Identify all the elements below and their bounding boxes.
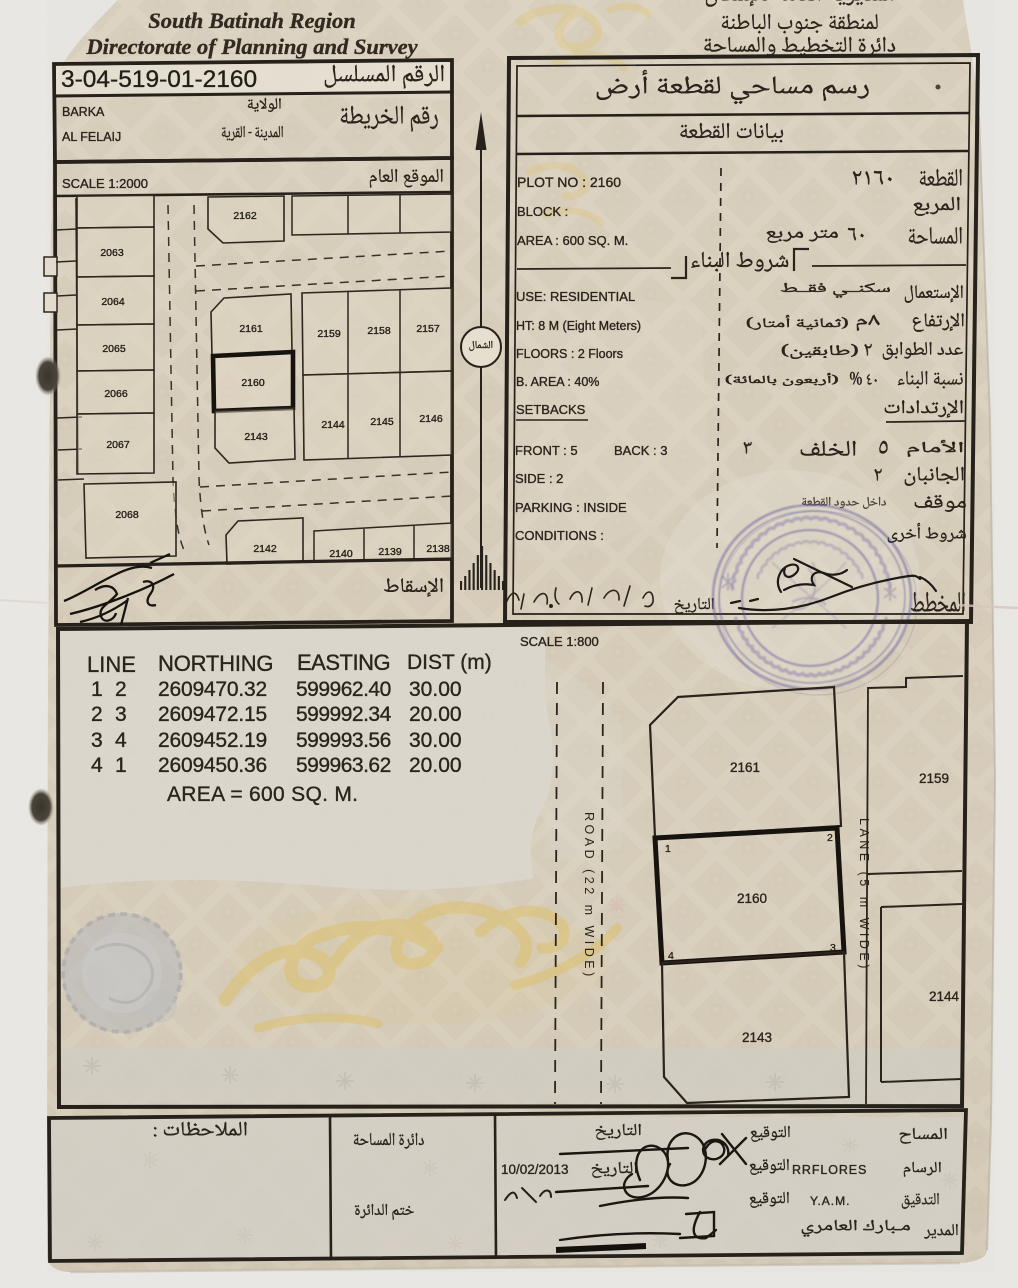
svg-text:2: 2 bbox=[91, 703, 103, 726]
svg-text:2143: 2143 bbox=[244, 431, 268, 443]
svg-text:2068: 2068 bbox=[115, 509, 139, 521]
svg-text:FLOORS : 2 Floors: FLOORS : 2 Floors bbox=[516, 347, 623, 361]
svg-text:SCALE 1:800: SCALE 1:800 bbox=[520, 634, 599, 649]
svg-text:ROAD (22 m WIDE): ROAD (22 m WIDE) bbox=[582, 812, 596, 980]
svg-text:2609470.32: 2609470.32 bbox=[158, 678, 267, 701]
svg-text:2144: 2144 bbox=[929, 989, 960, 1004]
svg-text:2159: 2159 bbox=[317, 328, 341, 340]
svg-text:LINE: LINE bbox=[87, 652, 136, 677]
svg-text:1: 1 bbox=[115, 754, 127, 777]
svg-text:2609450.36: 2609450.36 bbox=[158, 754, 267, 777]
svg-text:3: 3 bbox=[91, 729, 103, 752]
svg-text:2: 2 bbox=[827, 832, 833, 844]
svg-text:PARKING : INSIDE: PARKING : INSIDE bbox=[515, 500, 627, 515]
svg-text:2159: 2159 bbox=[919, 771, 949, 786]
svg-text:1: 1 bbox=[91, 678, 103, 701]
svg-text:2: 2 bbox=[115, 678, 127, 701]
svg-text:2162: 2162 bbox=[233, 210, 257, 222]
svg-text:30.00: 30.00 bbox=[409, 729, 462, 752]
svg-text:SETBACKS: SETBACKS bbox=[516, 402, 586, 417]
svg-text:2145: 2145 bbox=[370, 416, 394, 428]
svg-text:2065: 2065 bbox=[102, 343, 126, 355]
svg-text:CONDITIONS :: CONDITIONS : bbox=[515, 528, 604, 543]
svg-text:HT: 8 M (Eight Meters): HT: 8 M (Eight Meters) bbox=[516, 319, 641, 333]
svg-text:PLOT NO : 2160: PLOT NO : 2160 bbox=[517, 174, 621, 190]
svg-text:20.00: 20.00 bbox=[409, 703, 462, 726]
svg-text:2063: 2063 bbox=[100, 247, 124, 259]
svg-text:2157: 2157 bbox=[416, 323, 440, 335]
svg-text:599963.62: 599963.62 bbox=[296, 754, 391, 777]
svg-text:BARKA: BARKA bbox=[62, 105, 105, 119]
svg-text:1: 1 bbox=[665, 843, 671, 855]
svg-text:AREA = 600 SQ. M.: AREA = 600 SQ. M. bbox=[167, 783, 358, 806]
svg-text:4: 4 bbox=[115, 729, 127, 752]
svg-text:599962.40: 599962.40 bbox=[296, 678, 391, 701]
svg-text:BLOCK :: BLOCK : bbox=[517, 204, 568, 219]
svg-text:Y.A.M.: Y.A.M. bbox=[810, 1194, 850, 1208]
svg-text:2142: 2142 bbox=[253, 543, 277, 555]
svg-text:BACK : 3: BACK : 3 bbox=[614, 443, 667, 458]
svg-text:2160: 2160 bbox=[241, 377, 265, 389]
svg-text:USE: RESIDENTIAL: USE: RESIDENTIAL bbox=[516, 289, 635, 304]
svg-text:B. AREA : 40%: B. AREA : 40% bbox=[516, 375, 599, 389]
svg-text:3-04-519-01-2160: 3-04-519-01-2160 bbox=[61, 66, 257, 93]
svg-text:2161: 2161 bbox=[730, 760, 760, 775]
svg-text:LANE (5 m WIDE): LANE (5 m WIDE) bbox=[857, 818, 871, 972]
svg-text:DIST (m): DIST (m) bbox=[407, 651, 492, 674]
svg-text:2067: 2067 bbox=[106, 439, 130, 451]
svg-text:AL FELAIJ: AL FELAIJ bbox=[62, 130, 121, 144]
svg-text:2161: 2161 bbox=[239, 323, 263, 335]
svg-text:2138: 2138 bbox=[426, 543, 450, 555]
svg-text:2064: 2064 bbox=[101, 296, 125, 308]
svg-text:SCALE 1:2000: SCALE 1:2000 bbox=[62, 176, 148, 191]
svg-text:2160: 2160 bbox=[737, 891, 767, 906]
svg-text:20.00: 20.00 bbox=[409, 754, 462, 777]
svg-text:2066: 2066 bbox=[104, 388, 128, 400]
svg-text:2158: 2158 bbox=[367, 325, 391, 337]
svg-text:2609452.19: 2609452.19 bbox=[158, 729, 267, 752]
svg-text:RRFLORES: RRFLORES bbox=[792, 1163, 867, 1177]
svg-text:2144: 2144 bbox=[321, 419, 345, 431]
svg-text:EASTING: EASTING bbox=[297, 650, 390, 675]
svg-text:2143: 2143 bbox=[742, 1030, 772, 1045]
svg-text:2139: 2139 bbox=[378, 546, 402, 558]
svg-text:10/02/2013: 10/02/2013 bbox=[501, 1162, 569, 1177]
svg-text:Directorate of Planning and Su: Directorate of Planning and Survey bbox=[85, 34, 418, 59]
svg-text:SIDE : 2: SIDE : 2 bbox=[515, 471, 563, 486]
svg-text:2146: 2146 bbox=[419, 413, 443, 425]
svg-text:3: 3 bbox=[115, 703, 127, 726]
svg-text:599993.56: 599993.56 bbox=[296, 729, 391, 752]
svg-text:2140: 2140 bbox=[329, 548, 353, 560]
svg-text:4: 4 bbox=[91, 754, 103, 777]
svg-text:South Batinah Region: South Batinah Region bbox=[148, 8, 356, 33]
svg-text:AREA : 600 SQ. M.: AREA : 600 SQ. M. bbox=[517, 233, 628, 248]
svg-text:4: 4 bbox=[668, 950, 674, 962]
svg-text:2609472.15: 2609472.15 bbox=[158, 703, 267, 726]
svg-text:599992.34: 599992.34 bbox=[296, 703, 392, 726]
svg-text:NORTHING: NORTHING bbox=[158, 651, 273, 676]
svg-text:30.00: 30.00 bbox=[409, 678, 462, 701]
svg-text:FRONT : 5: FRONT : 5 bbox=[515, 443, 578, 458]
